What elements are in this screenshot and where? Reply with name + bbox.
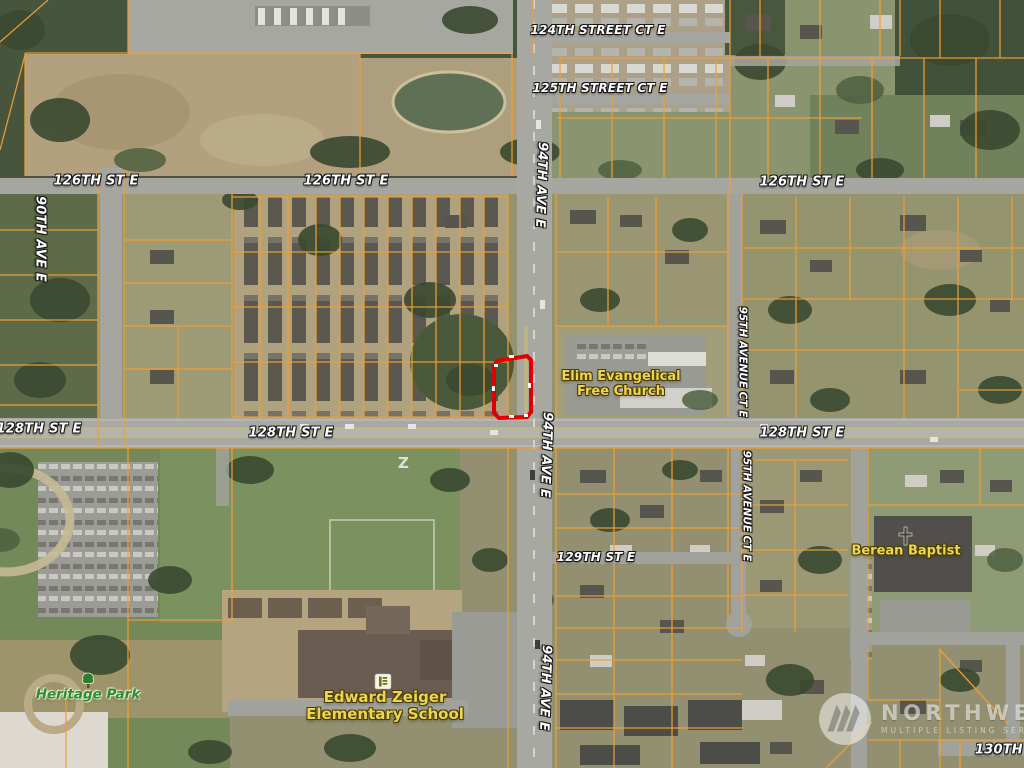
street-label-128th-st-e-left: 128TH ST E <box>0 423 82 436</box>
street-label-90th-ave-e: 90TH AVE E <box>34 196 47 282</box>
poi-label-edward-zeiger-line2: Elementary School <box>306 706 464 723</box>
street-label-95th-avenue-ct-e-lower: 95TH AVENUE CT E <box>741 451 752 562</box>
street-label-126th-st-e-center: 126TH ST E <box>303 175 388 188</box>
street-label-94th-ave-e-top: 94TH AVE E <box>533 142 549 228</box>
street-label-95th-avenue-ct-e-upper: 95TH AVENUE CT E <box>737 307 748 418</box>
street-label-94th-ave-e-bottom: 94TH AVE E <box>537 645 553 731</box>
field-marking: Z <box>398 454 409 472</box>
street-label-94th-ave-e-mid: 94TH AVE E <box>538 412 554 498</box>
street-label-129th-st-e: 129TH ST E <box>557 551 636 563</box>
street-label-124th-street-ct-e: 124TH STREET CT E <box>530 24 665 36</box>
poi-label-elim-church-line2: Free Church <box>561 385 680 400</box>
street-label-126th-st-e-left: 126TH ST E <box>53 175 138 188</box>
street-label-128th-st-e-center: 128TH ST E <box>248 427 333 440</box>
poi-label-elim-church-line1: Elim Evangelical <box>561 370 680 385</box>
street-label-125th-street-ct-e: 125TH STREET CT E <box>532 82 667 94</box>
poi-label-edward-zeiger-line1: Edward Zeiger <box>306 689 464 706</box>
poi-label-elim-church: Elim Evangelical Free Church <box>561 370 680 400</box>
street-label-130th-str: 130TH STR <box>975 744 1024 757</box>
poi-label-berean-baptist: Berean Baptist <box>851 545 960 560</box>
satellite-parcel-map[interactable]: Z 124TH STREET CT E 125TH STREET CT E 12… <box>0 0 1024 768</box>
poi-label-edward-zeiger-school: Edward Zeiger Elementary School <box>306 689 464 724</box>
street-label-126th-st-e-right: 126TH ST E <box>759 176 844 189</box>
street-label-128th-st-e-right: 128TH ST E <box>759 427 844 440</box>
poi-label-heritage-park: Heritage Park <box>36 688 141 702</box>
satellite-imagery: Z <box>0 0 1024 768</box>
